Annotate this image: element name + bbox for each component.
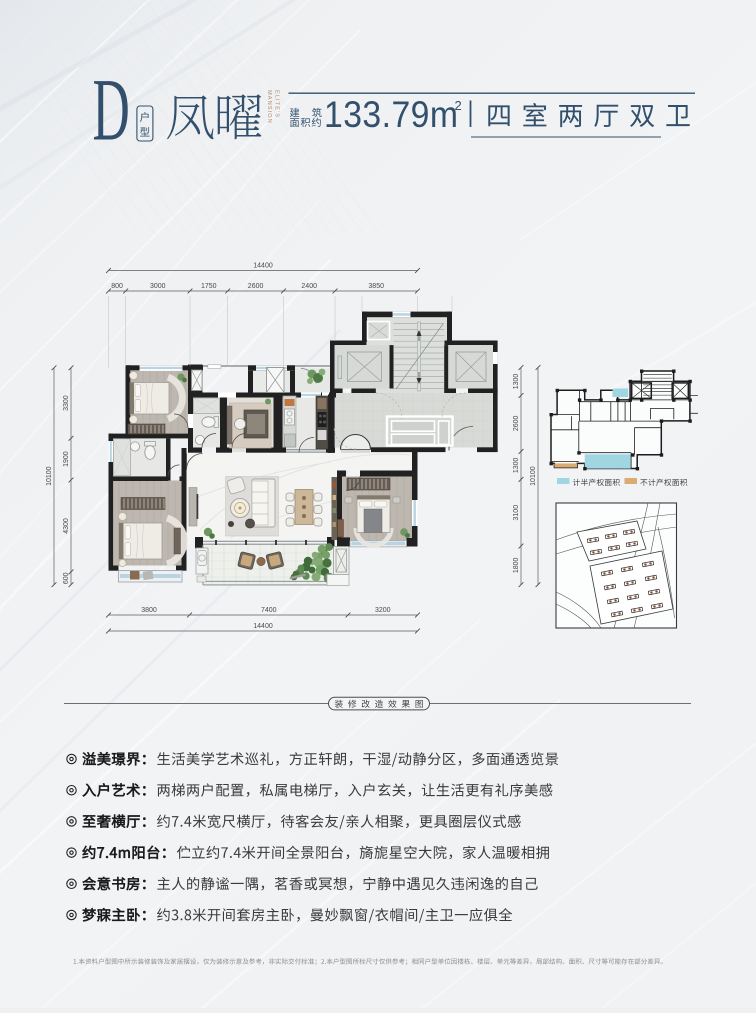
svg-text:1300: 1300 — [513, 458, 520, 474]
svg-text:1900: 1900 — [63, 451, 70, 467]
svg-text:2600: 2600 — [248, 283, 264, 290]
svg-text:1800: 1800 — [513, 558, 520, 574]
svg-text:10100: 10100 — [530, 466, 537, 486]
svg-text:3300: 3300 — [63, 395, 70, 411]
svg-text:10100: 10100 — [46, 466, 53, 486]
svg-text:14400: 14400 — [253, 623, 273, 630]
svg-text:2: 2 — [455, 98, 462, 113]
svg-text:1750: 1750 — [201, 283, 217, 290]
svg-text:3000: 3000 — [150, 283, 166, 290]
svg-text:1300: 1300 — [513, 374, 520, 390]
svg-text:3200: 3200 — [375, 607, 391, 614]
svg-text:4300: 4300 — [63, 518, 70, 534]
svg-text:3100: 3100 — [513, 505, 520, 521]
svg-text:3850: 3850 — [368, 283, 384, 290]
svg-text:14400: 14400 — [253, 263, 273, 270]
svg-text:7400: 7400 — [261, 607, 277, 614]
svg-text:600: 600 — [63, 572, 70, 584]
svg-text:D: D — [93, 60, 130, 159]
svg-text:800: 800 — [111, 283, 123, 290]
svg-text:ELITE'S: ELITE'S — [274, 90, 280, 118]
svg-text:2600: 2600 — [513, 416, 520, 432]
svg-text:2400: 2400 — [301, 283, 317, 290]
svg-text:133.79m: 133.79m — [324, 93, 458, 135]
svg-text:MANSION: MANSION — [266, 90, 272, 124]
svg-text:3800: 3800 — [141, 607, 157, 614]
